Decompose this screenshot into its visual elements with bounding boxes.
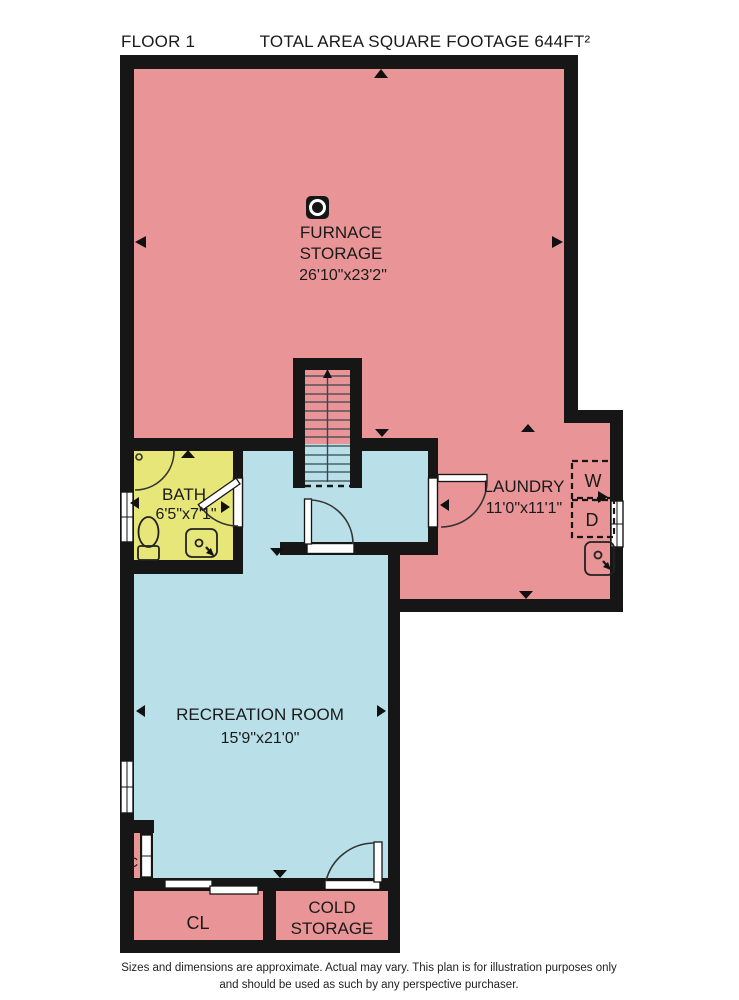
laundry-label: LAUNDRY (484, 477, 565, 496)
hall-door-leaf (305, 499, 312, 544)
washer-label: W (585, 471, 602, 491)
furnace-label-line2: STORAGE (300, 244, 383, 263)
wall-recreation-right (388, 542, 400, 953)
floor-title: FLOOR 1 (121, 32, 195, 51)
wall-laundry-bottom (388, 599, 623, 612)
wall-stair-top (293, 358, 362, 370)
wall-bath-hall-top (120, 438, 305, 451)
laundry-door-leaf (438, 475, 487, 482)
wall-bath-bottom (120, 560, 243, 574)
small-closet-label: C (128, 854, 138, 870)
laundry-door-opening (429, 478, 438, 527)
bath-label: BATH (162, 485, 206, 504)
wall-closet-divider (263, 878, 276, 953)
wall-stair-right (350, 358, 362, 488)
cold-storage-door-leaf (374, 842, 382, 882)
wall-bottom (120, 940, 400, 953)
total-area-title: TOTAL AREA SQUARE FOOTAGE 644FT² (260, 32, 591, 51)
floor-plan-canvas: FLOOR 1 TOTAL AREA SQUARE FOOTAGE 644FT²… (0, 0, 739, 1000)
furnace-dims: 26'10"x23'2" (299, 267, 387, 284)
cold-storage-label-line1: COLD (308, 898, 355, 917)
wall-top (120, 55, 578, 69)
closet-slider-panel-2 (210, 886, 258, 894)
closet-slider-panel-1 (165, 880, 212, 888)
wall-stair-left (293, 358, 305, 488)
furnace-icon (306, 196, 329, 219)
bath-dims: 6'5"x7'1" (155, 506, 216, 523)
disclaimer-line1: Sizes and dimensions are approximate. Ac… (121, 962, 617, 974)
cold-storage-door-opening (325, 881, 380, 890)
recreation-label: RECREATION ROOM (176, 705, 344, 724)
wall-small-closet-top (120, 820, 154, 833)
floor-plan-page: FLOOR 1 TOTAL AREA SQUARE FOOTAGE 644FT²… (0, 0, 739, 1000)
wall-hall-top-right (350, 438, 438, 451)
furnace-label-line1: FURNACE (300, 223, 382, 242)
recreation-dims: 15'9"x21'0" (221, 730, 300, 747)
dryer-label: D (586, 510, 599, 530)
disclaimer-line2: and should be used as such by any perspe… (219, 979, 518, 991)
cold-storage-label-line2: STORAGE (291, 919, 374, 938)
hall-door-opening (307, 544, 354, 554)
laundry-dims: 11'0"x11'1" (486, 500, 562, 517)
closet-label: CL (186, 913, 209, 933)
wall-right-upper (564, 55, 578, 415)
wall-hall-bottom (280, 542, 438, 555)
